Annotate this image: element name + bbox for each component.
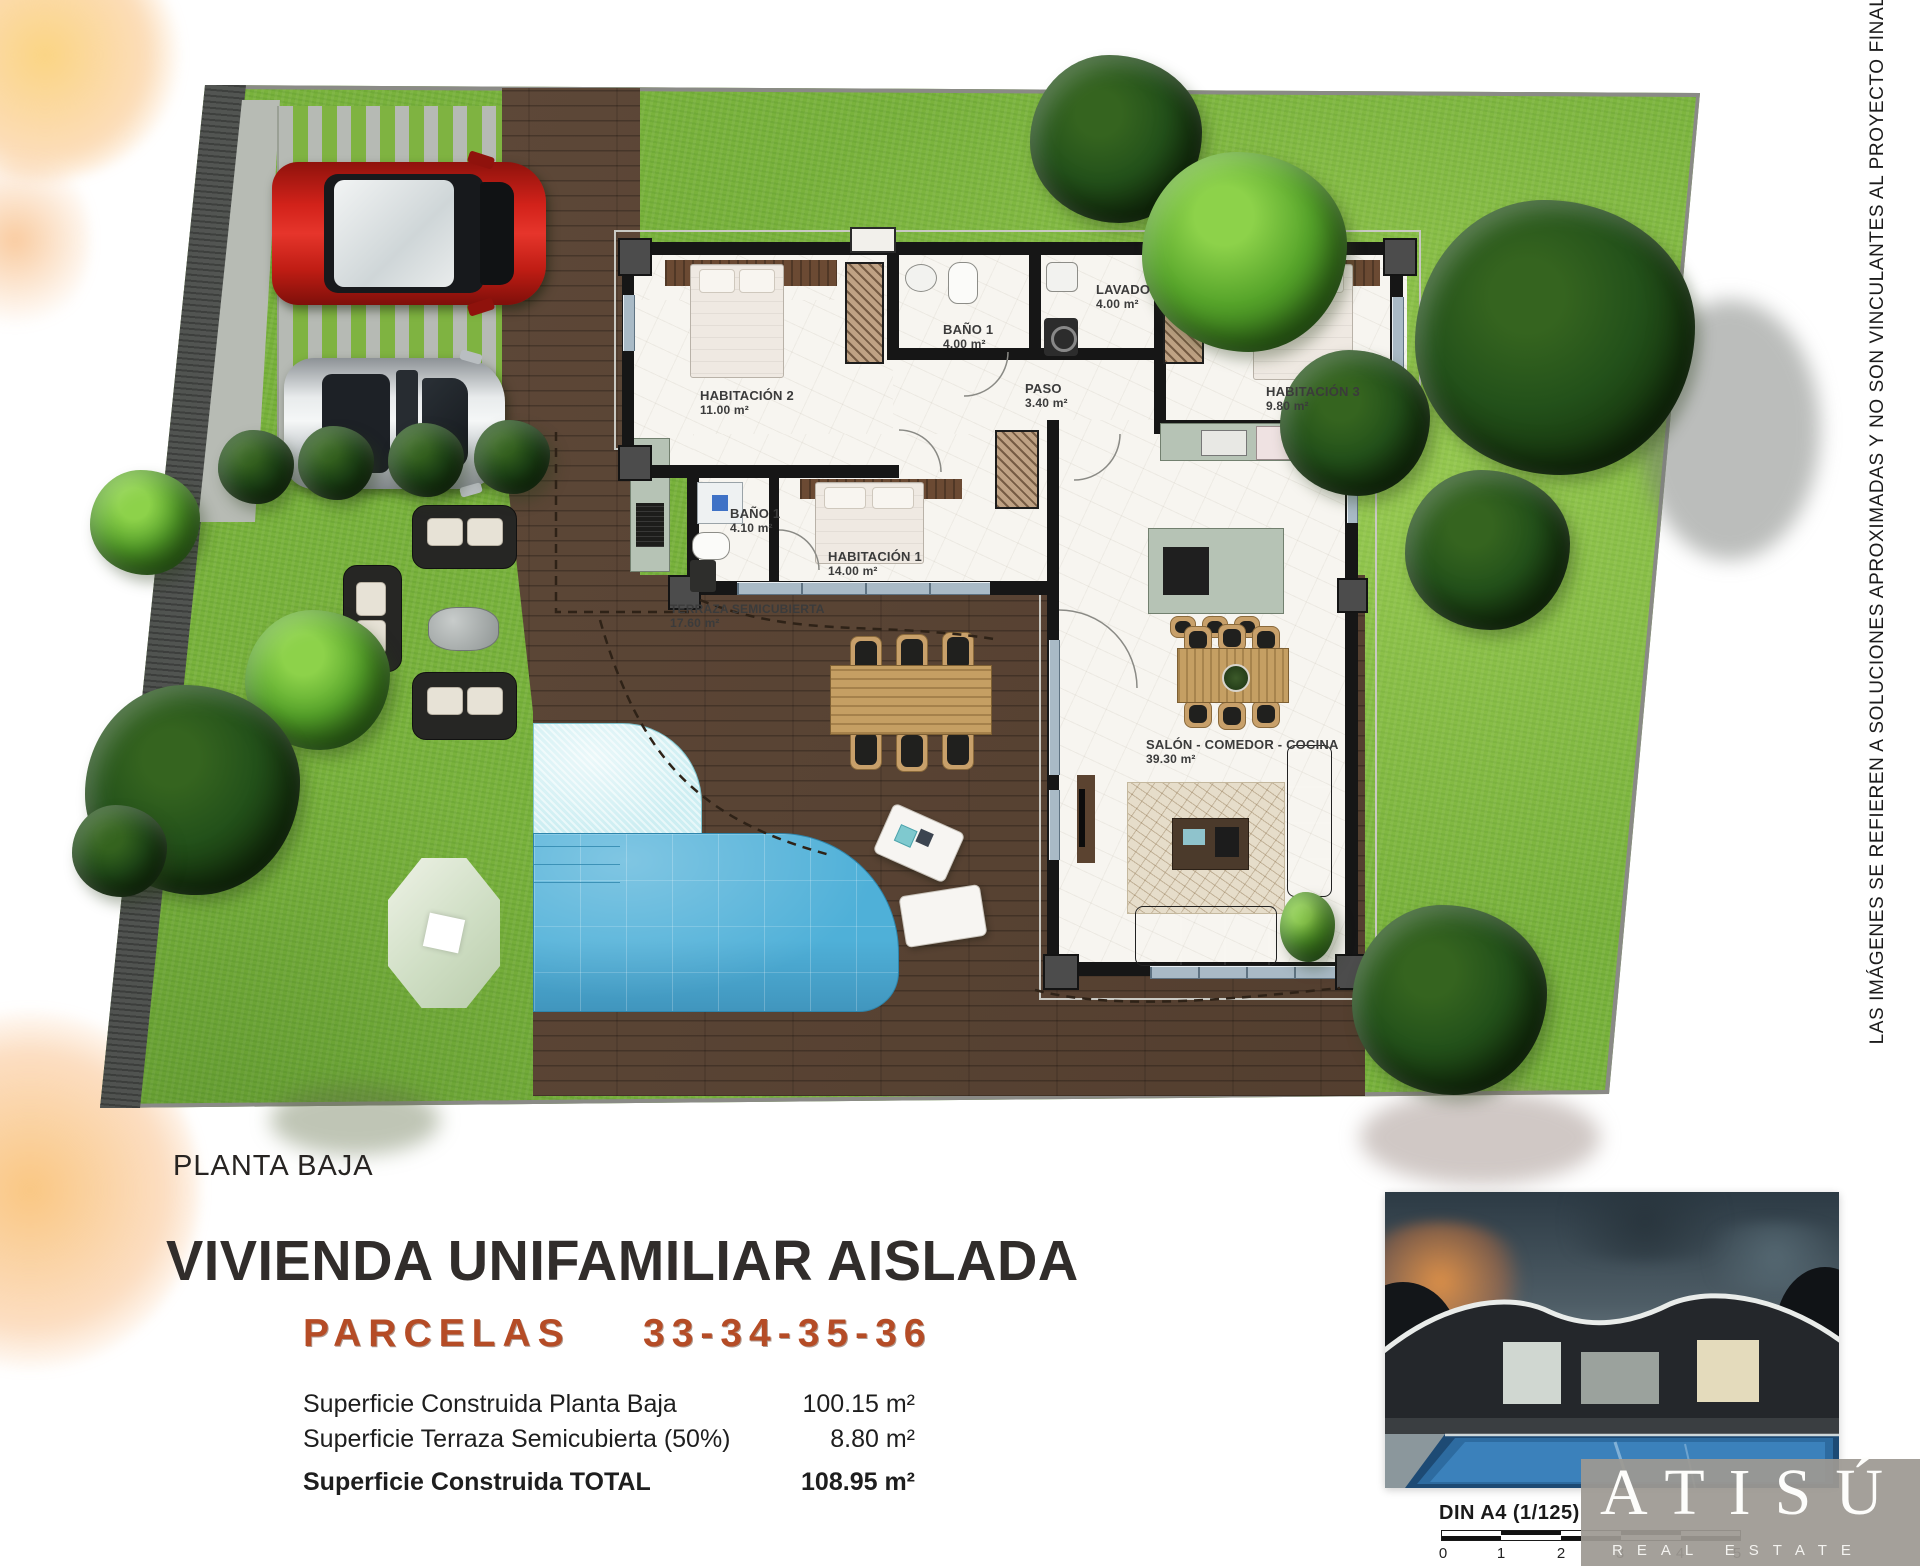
window (623, 295, 635, 351)
wall (1029, 248, 1041, 360)
floor-label: PLANTA BAJA (173, 1150, 374, 1183)
toilet (948, 262, 978, 304)
bush (218, 430, 294, 504)
bush (474, 420, 550, 494)
window (1049, 640, 1060, 775)
pillar (1337, 578, 1368, 613)
wall (887, 248, 899, 360)
tree-cluster (1415, 200, 1695, 475)
vent-block (850, 227, 896, 253)
coffee-table (1172, 818, 1249, 870)
brand-logo: ATISÚ (1600, 1455, 1907, 1531)
sofa-l-vertical (1287, 745, 1332, 897)
page-title: VIVIENDA UNIFAMILIAR AISLADA (166, 1228, 1079, 1294)
garden-sofa (412, 505, 517, 569)
room-label-salon: SALÓN - COMEDOR - COCINA39.30 m² (1146, 737, 1339, 766)
tree (1142, 152, 1347, 352)
room-label-lavado: LAVADO4.00 m² (1096, 282, 1150, 311)
parasol (388, 858, 500, 1008)
wall (622, 465, 899, 478)
tree-shadow (1360, 1090, 1600, 1185)
area-row: Superficie Terraza Semicubierta (50%) 8.… (303, 1425, 915, 1454)
wardrobe (845, 262, 884, 364)
pillar (1043, 954, 1079, 990)
sliding-door (1150, 966, 1340, 979)
room-label-banyo1-top: BAÑO 14.00 m² (943, 322, 993, 351)
tree (1405, 470, 1570, 630)
sliding-door (737, 582, 990, 595)
parcels-numbers: 33-34-35-36 (643, 1312, 932, 1356)
tree (90, 470, 200, 575)
brand-logo-subtitle: REAL ESTATE (1612, 1542, 1865, 1559)
window (1049, 790, 1060, 860)
bed-hab2 (690, 264, 784, 378)
pool (533, 833, 899, 1012)
tv-unit (1077, 775, 1095, 863)
wall (769, 477, 779, 595)
parasol-shadow (270, 1085, 440, 1155)
bush (72, 805, 167, 897)
areas-table: Superficie Construida Planta Baja 100.15… (303, 1390, 915, 1497)
pillar (618, 445, 652, 481)
house-render-photo (1385, 1192, 1839, 1488)
wall (887, 348, 1166, 360)
indoor-plant (1280, 892, 1335, 962)
washbasin (905, 264, 937, 292)
room-label-terraza: TERRAZA SEMICUBIERTA17.60 m² (670, 602, 825, 630)
wall (622, 242, 634, 479)
parcels-label: PARCELAS (303, 1312, 571, 1356)
area-row-total: Superficie Construida TOTAL 108.95 m² (303, 1468, 915, 1497)
garden-sofa (412, 672, 517, 740)
disclaimer-vertical-text: LAS IMÁGENES SE REFIEREN A SOLUCIONES AP… (1867, 0, 1889, 1044)
toilet (692, 532, 730, 560)
sofa-main (1135, 906, 1277, 966)
pillar (618, 238, 652, 276)
kitchen-island (1148, 528, 1284, 614)
room-label-habitacion1: HABITACIÓN 114.00 m² (828, 549, 922, 578)
area-row: Superficie Construida Planta Baja 100.15… (303, 1390, 915, 1419)
closet (995, 430, 1039, 509)
bush (388, 423, 464, 497)
red-car (272, 162, 546, 305)
dining-table (1177, 648, 1289, 703)
room-label-habitacion2: HABITACIÓN 211.00 m² (700, 388, 794, 417)
floorplan-sheet: HABITACIÓN 211.00 m² BAÑO 14.00 m² LAVAD… (0, 0, 1920, 1566)
garden-table (428, 607, 499, 651)
room-label-paso: PASO3.40 m² (1025, 381, 1068, 410)
pillar (1383, 238, 1417, 276)
bath-vanity (690, 560, 716, 592)
room-label-banyo1-bottom: BAÑO 14.10 m² (730, 506, 780, 535)
tree (1352, 905, 1547, 1095)
tree (1280, 350, 1430, 496)
outdoor-dining-table (830, 665, 992, 735)
room-label-habitacion3: HABITACIÓN 39.80 m² (1266, 384, 1360, 413)
washer (1044, 318, 1078, 356)
laundry-sink (1046, 262, 1078, 292)
sheet-format-label: DIN A4 (1/125) (1439, 1502, 1580, 1525)
bush (298, 426, 374, 500)
